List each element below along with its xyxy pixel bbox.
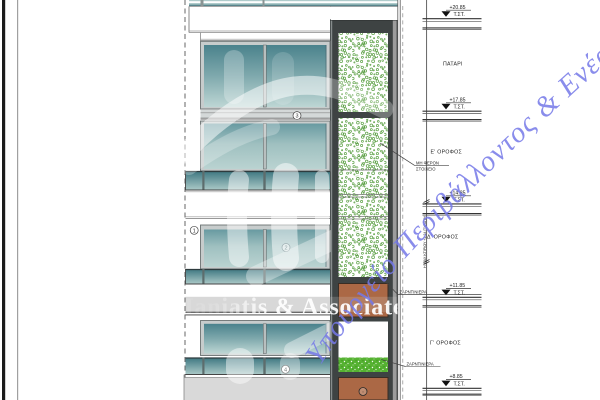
svg-text:Τ.ΣΤ.: Τ.ΣΤ. xyxy=(454,105,465,111)
svg-text:Τ.ΣΤ.: Τ.ΣΤ. xyxy=(454,12,465,18)
svg-text:ΖΑΡΝΤΙΝΙΕΡΑ: ΖΑΡΝΤΙΝΙΕΡΑ xyxy=(400,290,427,295)
svg-text:ΖΑΡΝΤΙΝΙΕΡΑ: ΖΑΡΝΤΙΝΙΕΡΑ xyxy=(407,361,434,366)
svg-text:3: 3 xyxy=(295,114,298,120)
svg-text:Τ.ΣΤ.: Τ.ΣΤ. xyxy=(454,290,465,296)
svg-text:ΣΤΟΙΧΕΙΟ: ΣΤΟΙΧΕΙΟ xyxy=(416,167,436,172)
svg-text:ΜΗ ΦΕΡΟΝ: ΜΗ ΦΕΡΟΝ xyxy=(416,161,439,166)
svg-text:Ε' ΟΡΟΦΟΣ: Ε' ΟΡΟΦΟΣ xyxy=(431,150,463,156)
svg-text:Γ' ΟΡΟΦΟΣ: Γ' ΟΡΟΦΟΣ xyxy=(430,340,461,346)
svg-text:Τ.ΣΤ.: Τ.ΣΤ. xyxy=(454,381,465,387)
svg-text:1: 1 xyxy=(193,228,196,234)
svg-text:ΠΑΤΑΡΙ: ΠΑΤΑΡΙ xyxy=(443,62,463,68)
svg-text:◦: ◦ xyxy=(362,390,364,396)
